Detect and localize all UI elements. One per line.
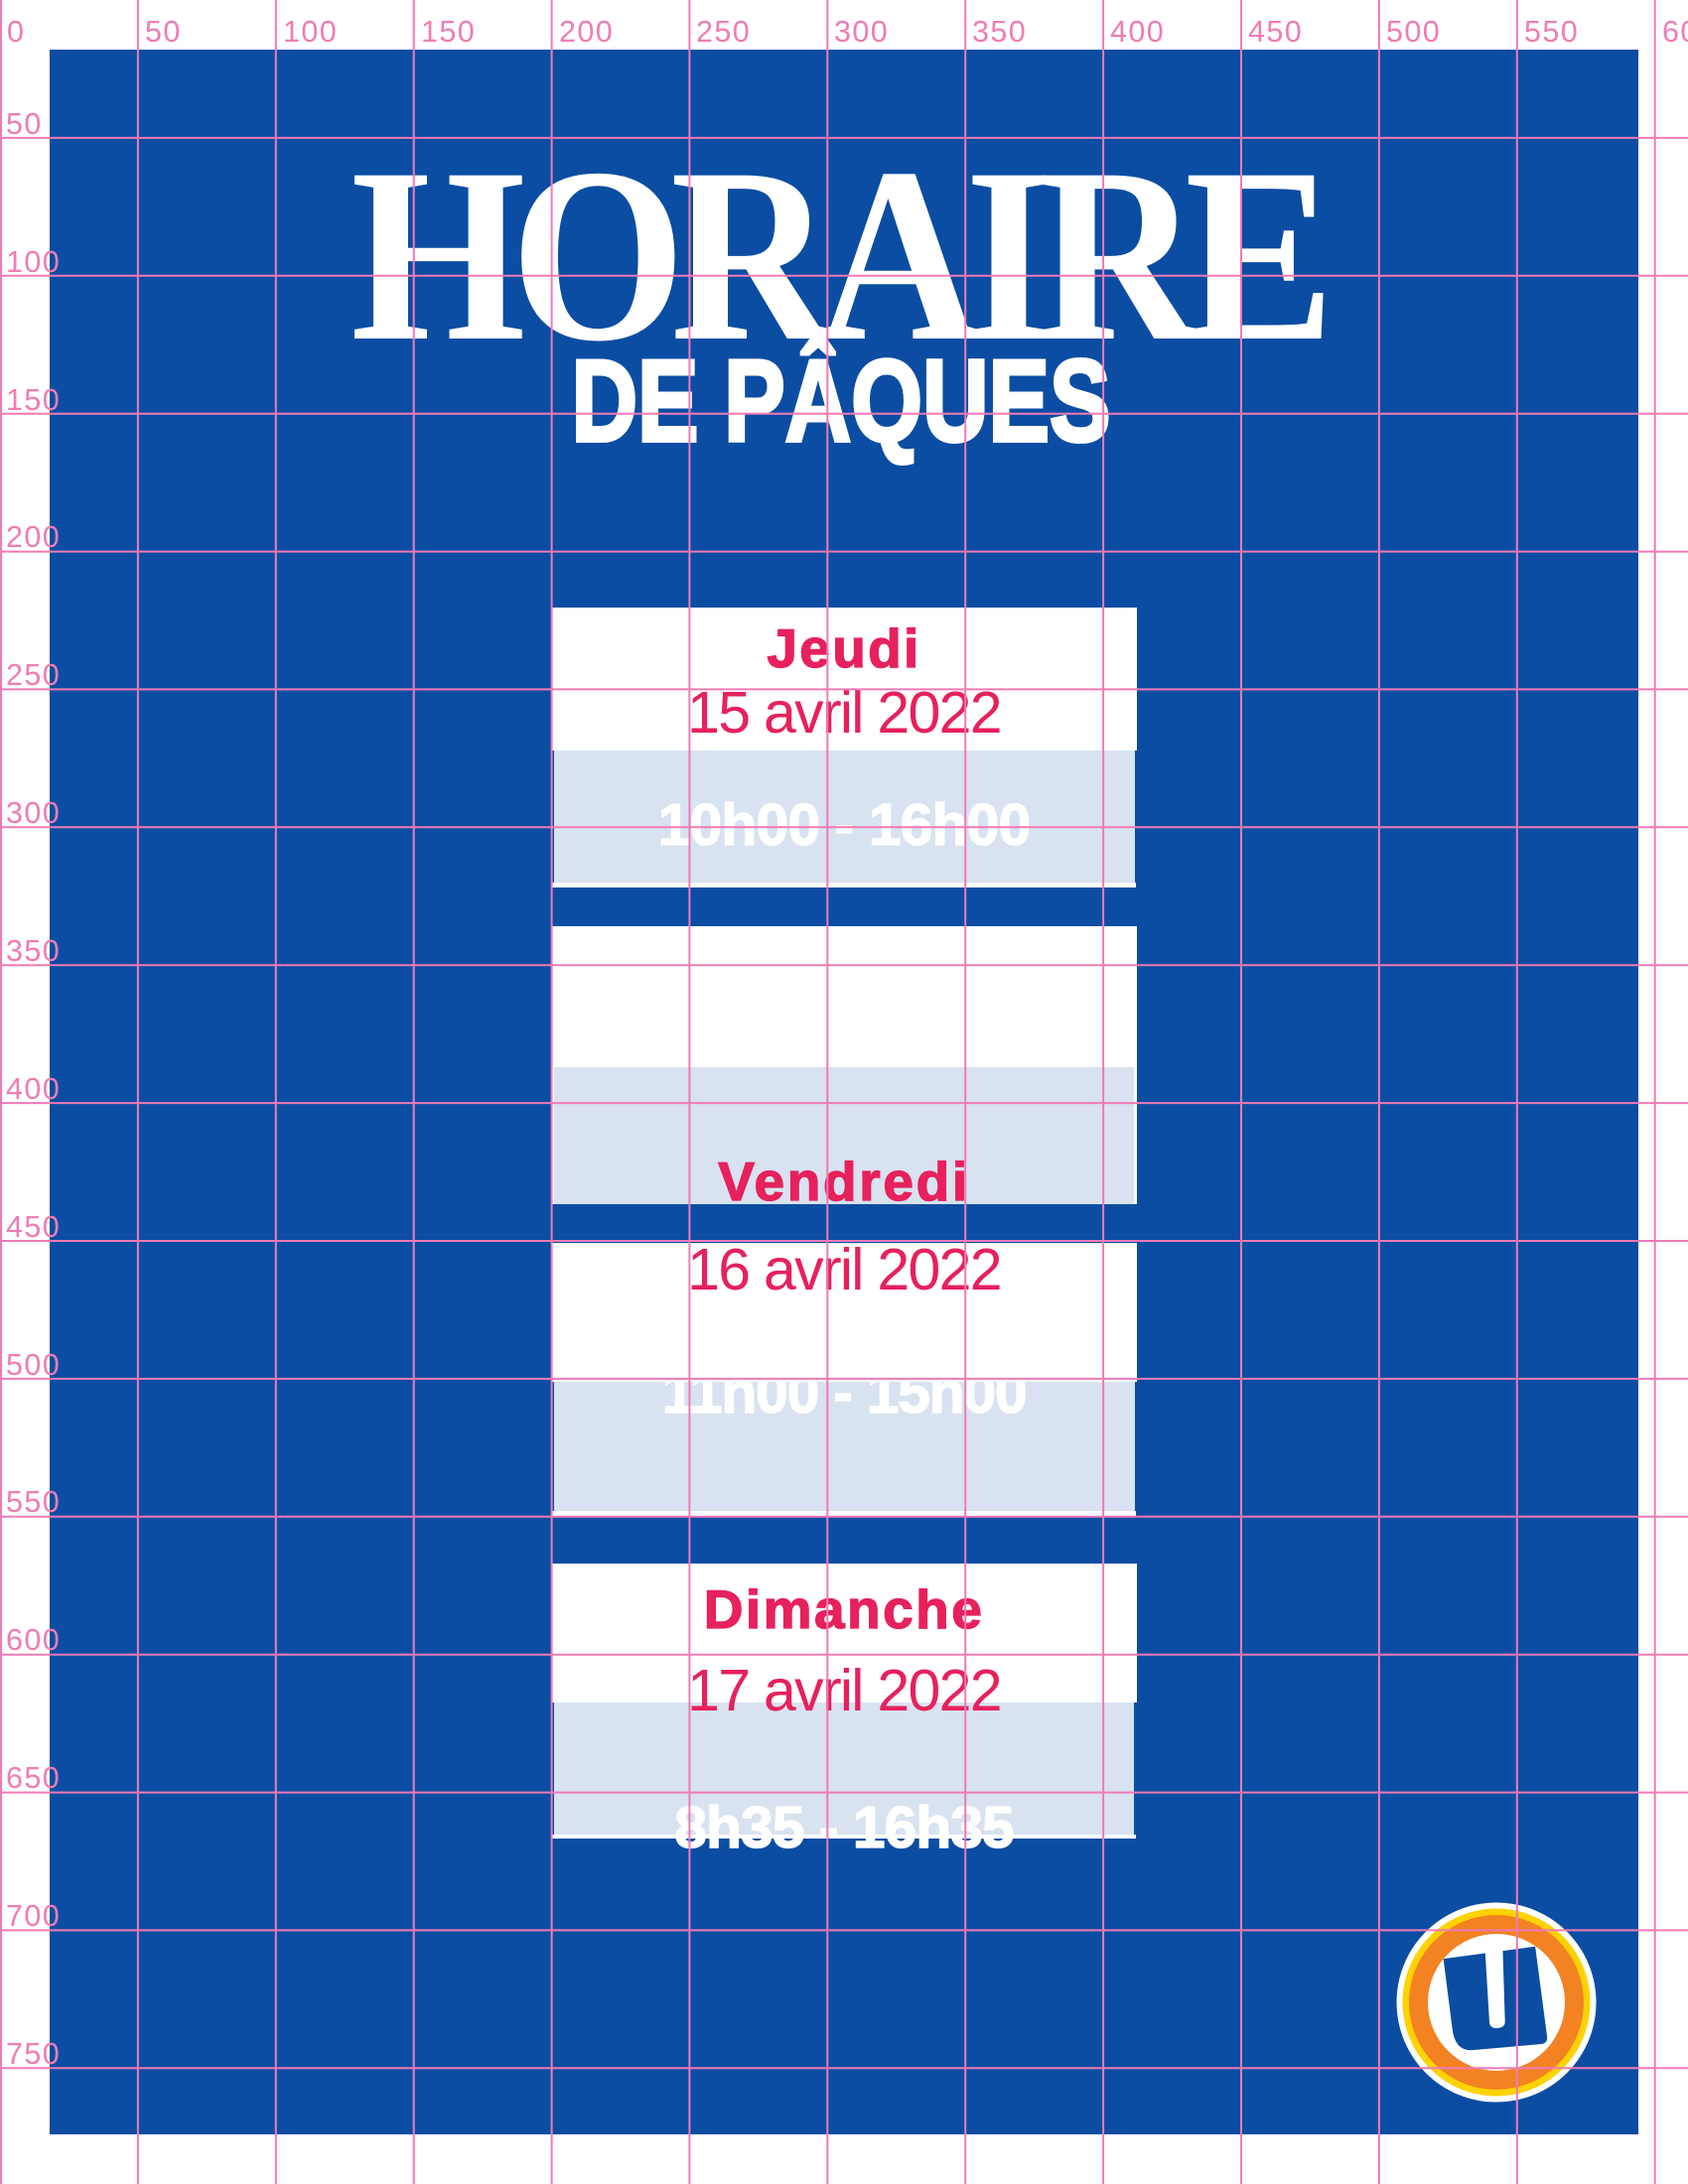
svg-text:600: 600 [6, 1623, 61, 1657]
svg-text:750: 750 [6, 2037, 61, 2071]
svg-text:400: 400 [1110, 15, 1165, 49]
svg-text:350: 350 [6, 934, 61, 968]
svg-text:250: 250 [6, 658, 61, 692]
svg-text:200: 200 [559, 15, 614, 49]
svg-text:450: 450 [1248, 15, 1303, 49]
svg-text:150: 150 [6, 383, 61, 417]
svg-text:400: 400 [6, 1072, 61, 1106]
svg-text:550: 550 [1524, 15, 1579, 49]
svg-text:500: 500 [6, 1348, 61, 1382]
svg-text:50: 50 [145, 15, 182, 49]
svg-text:550: 550 [6, 1485, 61, 1519]
svg-text:700: 700 [6, 1899, 61, 1933]
svg-text:250: 250 [696, 15, 751, 49]
svg-text:350: 350 [972, 15, 1027, 49]
svg-text:100: 100 [6, 245, 61, 279]
svg-text:100: 100 [283, 15, 338, 49]
svg-text:600: 600 [1662, 15, 1688, 49]
svg-text:200: 200 [6, 520, 61, 554]
svg-text:500: 500 [1386, 15, 1441, 49]
svg-text:50: 50 [6, 107, 43, 141]
svg-text:0: 0 [7, 15, 25, 49]
svg-text:300: 300 [6, 796, 61, 830]
svg-text:300: 300 [834, 15, 889, 49]
svg-text:150: 150 [421, 15, 476, 49]
svg-text:450: 450 [6, 1210, 61, 1244]
svg-text:650: 650 [6, 1761, 61, 1795]
